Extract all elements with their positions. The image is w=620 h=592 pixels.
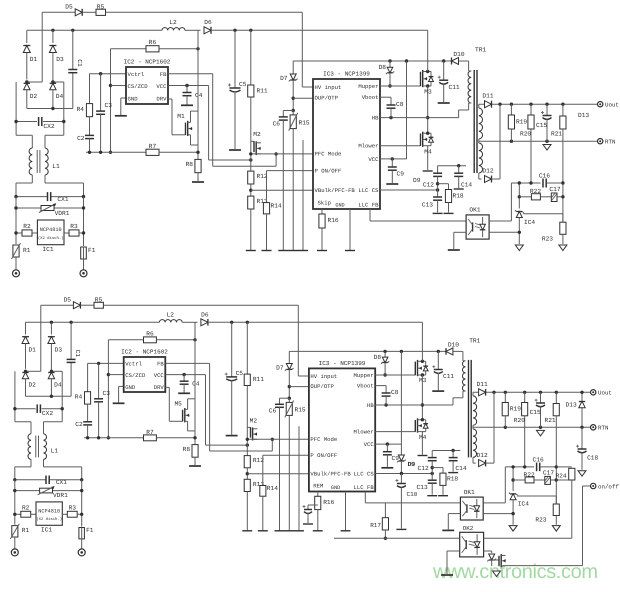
svg-text:C1: C1	[76, 59, 83, 67]
svg-text:Mupper: Mupper	[358, 83, 378, 90]
svg-text:(X2 disch.): (X2 disch.)	[38, 236, 64, 241]
svg-text:M1: M1	[177, 113, 185, 120]
svg-text:R18: R18	[453, 193, 464, 200]
svg-text:C15: C15	[536, 122, 547, 129]
svg-text:M2: M2	[253, 131, 261, 138]
svg-text:R5: R5	[97, 4, 105, 11]
svg-text:C13: C13	[422, 202, 433, 209]
svg-text:D10: D10	[448, 342, 459, 349]
svg-text:D9: D9	[408, 461, 416, 468]
svg-text:C17: C17	[549, 186, 560, 193]
svg-text:HB: HB	[367, 402, 374, 409]
svg-text:C12: C12	[418, 465, 429, 472]
svg-text:D11: D11	[477, 381, 488, 388]
svg-text:D1: D1	[30, 56, 38, 63]
svg-text:R2: R2	[23, 223, 31, 230]
svg-text:C4: C4	[195, 92, 203, 99]
svg-text:OUP/OTP: OUP/OTP	[315, 95, 339, 102]
svg-text:C17: C17	[543, 470, 554, 477]
svg-text:D2: D2	[28, 381, 36, 388]
svg-text:VDR1: VDR1	[53, 492, 68, 499]
svg-text:FB: FB	[157, 360, 164, 367]
svg-text:PFC Mode: PFC Mode	[315, 151, 342, 158]
svg-text:Vboot: Vboot	[362, 94, 379, 101]
svg-text:www.cntronics.com: www.cntronics.com	[432, 561, 598, 583]
svg-text:R16: R16	[328, 217, 339, 224]
svg-text:TR1: TR1	[475, 47, 486, 54]
svg-text:C14: C14	[455, 465, 466, 472]
svg-text:HB: HB	[372, 115, 379, 122]
svg-text:D8: D8	[374, 354, 382, 361]
svg-text:R8: R8	[183, 446, 191, 453]
svg-text:OUP/OTP: OUP/OTP	[310, 383, 334, 390]
svg-text:DRV: DRV	[156, 96, 167, 103]
svg-text:R23: R23	[542, 236, 553, 243]
svg-text:CX1: CX1	[56, 479, 67, 486]
svg-text:R11: R11	[257, 88, 268, 95]
svg-text:Vboot: Vboot	[357, 382, 374, 389]
svg-text:C3: C3	[103, 390, 111, 397]
svg-text:C13: C13	[417, 484, 428, 491]
svg-text:C15: C15	[530, 409, 541, 416]
svg-text:VCC: VCC	[368, 156, 379, 163]
svg-text:R20: R20	[520, 131, 531, 138]
svg-text:C18: C18	[587, 454, 598, 461]
svg-text:L2: L2	[169, 19, 177, 26]
svg-text:D5: D5	[64, 297, 72, 304]
svg-text:C8: C8	[396, 101, 404, 108]
svg-text:IC1: IC1	[42, 246, 53, 253]
svg-text:NCP4810: NCP4810	[40, 227, 62, 233]
svg-text:VCC: VCC	[154, 372, 165, 379]
svg-text:IC2 - NCP1602: IC2 - NCP1602	[121, 349, 168, 356]
svg-text:R11: R11	[253, 376, 264, 383]
svg-text:D5: D5	[65, 4, 73, 11]
svg-text:R15: R15	[299, 120, 310, 127]
svg-text:OK2: OK2	[463, 525, 474, 532]
svg-text:LLC FB: LLC FB	[354, 484, 375, 491]
svg-text:P ON/OFF: P ON/OFF	[310, 452, 337, 459]
svg-text:C5: C5	[239, 81, 247, 88]
svg-text:Vctrl: Vctrl	[125, 360, 142, 367]
svg-text:D11: D11	[482, 93, 493, 100]
svg-text:R20: R20	[514, 417, 525, 424]
svg-text:C11: C11	[443, 373, 454, 380]
svg-text:D6: D6	[201, 311, 209, 318]
svg-text:NCP4810: NCP4810	[38, 508, 60, 514]
svg-text:VDR1: VDR1	[55, 210, 70, 217]
svg-text:Uout: Uout	[598, 390, 612, 397]
svg-text:M2: M2	[250, 417, 258, 424]
svg-text:OK1: OK1	[469, 207, 480, 214]
svg-text:R19: R19	[510, 406, 521, 413]
svg-text:IC3 - NCP1399: IC3 - NCP1399	[323, 71, 370, 78]
svg-text:D10: D10	[453, 51, 464, 58]
svg-text:GND: GND	[128, 96, 139, 103]
svg-text:D4: D4	[56, 93, 64, 100]
svg-text:R21: R21	[545, 417, 556, 424]
svg-text:VCC: VCC	[364, 441, 375, 448]
svg-text:IC1: IC1	[41, 526, 52, 533]
svg-text:Mlower: Mlower	[354, 429, 374, 436]
svg-text:C8: C8	[391, 389, 399, 396]
svg-text:VBulk/PFC-FB: VBulk/PFC-FB	[315, 187, 356, 194]
svg-text:CS/ZCD: CS/ZCD	[125, 372, 146, 379]
svg-text:C16: C16	[533, 457, 544, 464]
svg-text:LLC FB: LLC FB	[358, 202, 379, 209]
svg-text:CX2: CX2	[43, 123, 54, 130]
svg-text:CX2: CX2	[42, 410, 53, 417]
svg-text:R14: R14	[267, 485, 278, 492]
svg-text:L1: L1	[51, 448, 59, 455]
svg-text:D9: D9	[413, 177, 421, 184]
svg-text:R17: R17	[370, 522, 381, 529]
svg-text:L1: L1	[52, 163, 60, 170]
svg-text:PFC Mode: PFC Mode	[310, 436, 337, 443]
svg-text:R14: R14	[271, 203, 282, 210]
svg-text:OK1: OK1	[464, 489, 475, 496]
svg-text:C4: C4	[192, 381, 200, 388]
svg-text:LLC CS: LLC CS	[354, 470, 375, 477]
svg-text:D2: D2	[30, 93, 38, 100]
svg-text:C2: C2	[75, 421, 83, 428]
svg-text:D12: D12	[482, 168, 493, 175]
svg-text:R21: R21	[551, 131, 562, 138]
svg-text:GND: GND	[331, 485, 340, 491]
svg-text:Mupper: Mupper	[354, 372, 374, 379]
svg-text:CS/ZCD: CS/ZCD	[128, 83, 149, 90]
svg-text:C2: C2	[77, 135, 85, 142]
svg-text:HV input: HV input	[310, 373, 337, 380]
svg-text:R1: R1	[22, 527, 30, 534]
svg-text:R16: R16	[323, 499, 334, 506]
svg-text:C6: C6	[269, 407, 277, 414]
svg-text:D13: D13	[578, 112, 589, 119]
svg-text:C14: C14	[461, 182, 472, 189]
svg-text:LLC CS: LLC CS	[358, 187, 379, 194]
svg-text:R8: R8	[186, 161, 194, 168]
svg-text:R4: R4	[75, 394, 83, 401]
svg-text:F1: F1	[88, 247, 96, 254]
svg-text:C6: C6	[273, 121, 281, 128]
svg-text:GND: GND	[335, 203, 344, 209]
svg-text:R22: R22	[530, 188, 541, 195]
svg-text:D12: D12	[477, 452, 488, 459]
svg-text:R7: R7	[146, 429, 154, 436]
svg-text:R6: R6	[146, 330, 154, 337]
svg-text:R7: R7	[149, 143, 157, 150]
svg-text:R3: R3	[69, 505, 77, 512]
svg-text:IC4: IC4	[518, 501, 529, 508]
svg-text:R22: R22	[524, 471, 535, 478]
svg-text:REM: REM	[313, 482, 323, 489]
svg-text:R24: R24	[556, 473, 567, 480]
svg-text:R5: R5	[95, 297, 103, 304]
svg-text:VCC: VCC	[156, 83, 167, 90]
svg-text:R18: R18	[447, 476, 458, 483]
svg-text:R19: R19	[516, 119, 527, 126]
svg-text:RTN: RTN	[605, 139, 616, 146]
svg-text:Vctrl: Vctrl	[128, 71, 145, 78]
svg-text:R23: R23	[535, 516, 546, 523]
svg-text:C5: C5	[236, 370, 244, 377]
svg-text:C1: C1	[74, 350, 81, 358]
svg-text:C9: C9	[397, 171, 405, 178]
svg-text:R15: R15	[295, 407, 306, 414]
svg-text:IC2 - NCP1602: IC2 - NCP1602	[124, 59, 171, 66]
svg-text:TR1: TR1	[469, 337, 480, 344]
svg-text:DRV: DRV	[154, 384, 165, 391]
svg-text:D13: D13	[566, 401, 577, 408]
svg-text:C3: C3	[105, 102, 113, 109]
svg-text:D3: D3	[55, 346, 63, 353]
svg-text:on/off: on/off	[598, 484, 619, 491]
svg-text:P ON/OFF: P ON/OFF	[315, 168, 342, 175]
svg-text:R6: R6	[149, 39, 157, 46]
svg-text:RTN: RTN	[598, 425, 609, 432]
svg-text:R2: R2	[22, 505, 30, 512]
svg-text:D7: D7	[276, 364, 284, 371]
svg-text:HV input: HV input	[315, 84, 342, 91]
svg-text:F1: F1	[86, 527, 94, 534]
svg-text:D8: D8	[379, 64, 387, 71]
svg-text:D1: D1	[28, 346, 36, 353]
svg-text:C12: C12	[423, 182, 434, 189]
svg-text:D3: D3	[56, 56, 64, 63]
svg-text:GND: GND	[125, 384, 136, 391]
svg-text:L2: L2	[167, 311, 175, 318]
svg-text:R4: R4	[77, 106, 85, 113]
svg-text:C16: C16	[539, 173, 550, 180]
svg-text:C10: C10	[407, 491, 418, 498]
svg-text:D6: D6	[204, 19, 212, 26]
svg-text:M5: M5	[174, 400, 182, 407]
svg-text:(X2 disch.): (X2 disch.)	[36, 517, 62, 522]
svg-text:FB: FB	[160, 71, 167, 78]
svg-text:R1: R1	[23, 247, 31, 254]
svg-text:CX1: CX1	[57, 196, 68, 203]
svg-text:C11: C11	[449, 84, 460, 91]
svg-text:IC4: IC4	[524, 219, 535, 226]
svg-text:D4: D4	[54, 381, 62, 388]
svg-text:Mlower: Mlower	[358, 143, 378, 150]
svg-text:Uout: Uout	[605, 102, 619, 109]
svg-text:D7: D7	[280, 75, 288, 82]
svg-text:Skip: Skip	[318, 200, 331, 207]
svg-text:IC3 - NCP1399: IC3 - NCP1399	[319, 360, 366, 367]
svg-text:VBulk/PFC-FB: VBulk/PFC-FB	[310, 470, 351, 477]
svg-text:R3: R3	[70, 223, 78, 230]
